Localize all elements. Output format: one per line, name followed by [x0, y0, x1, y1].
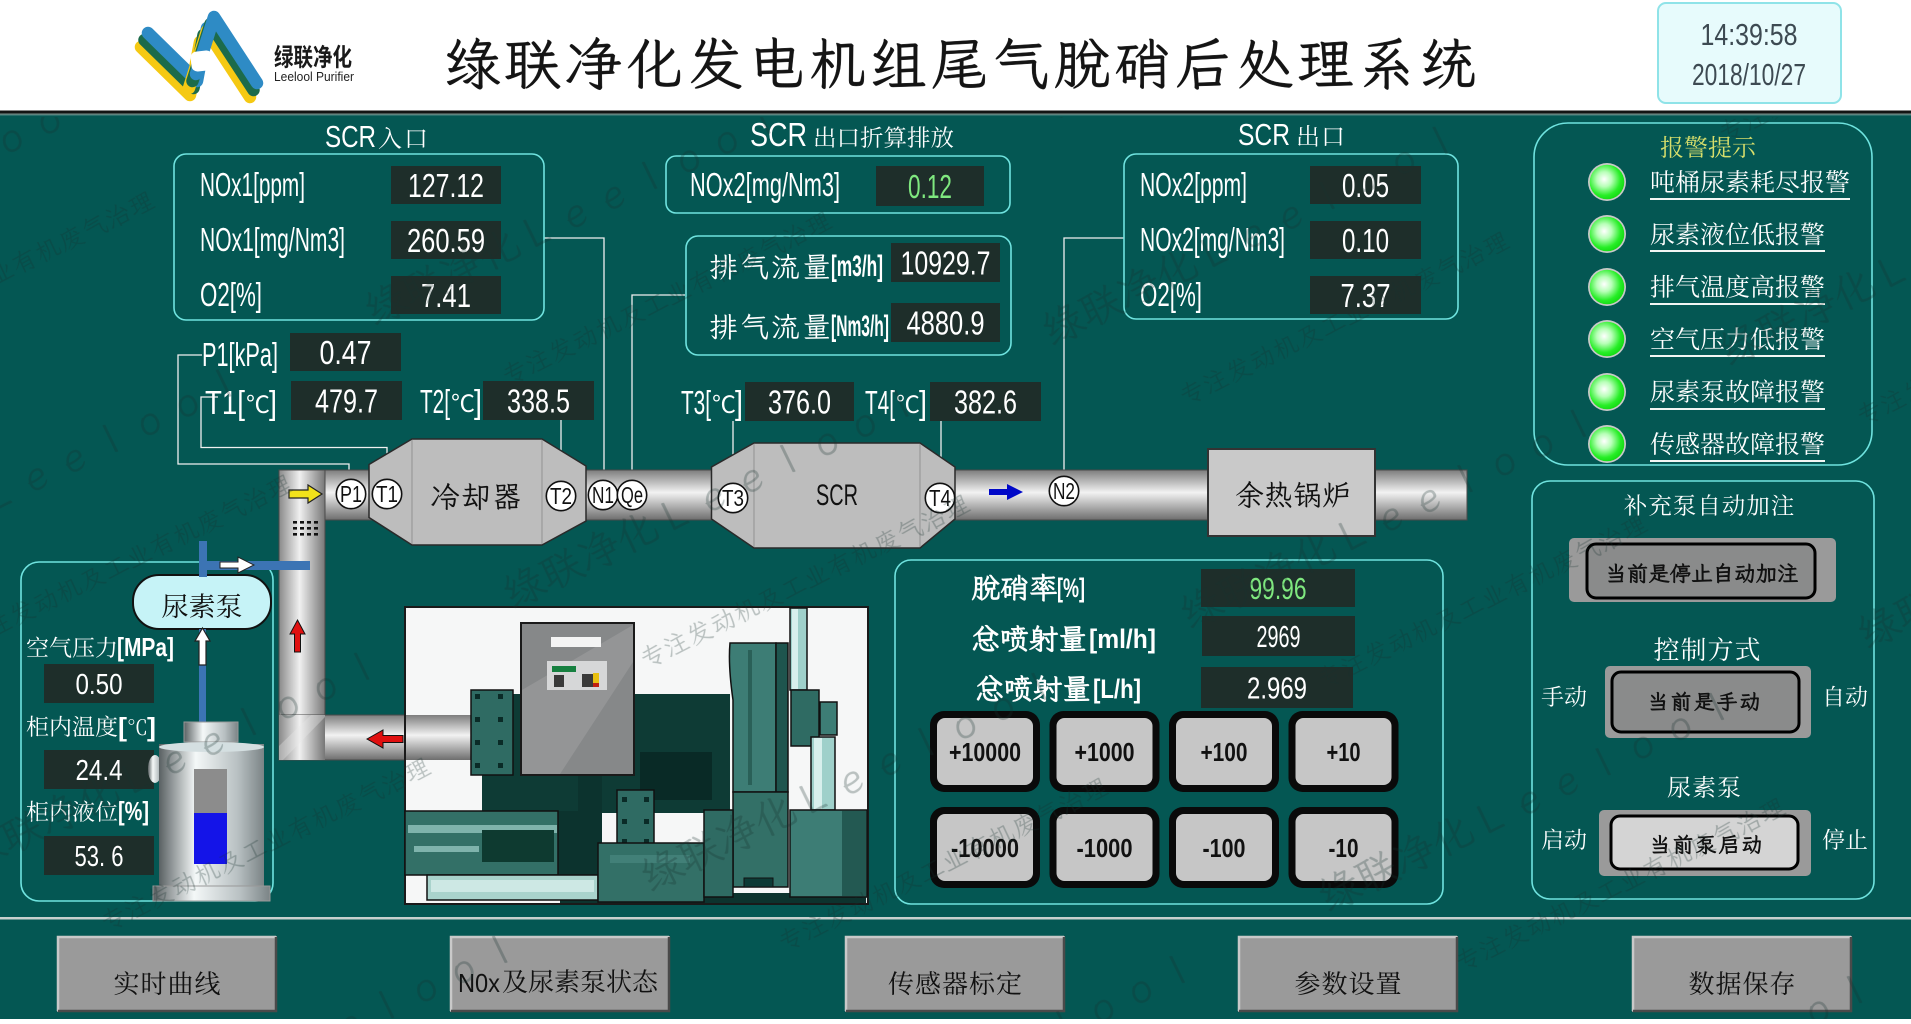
svg-text:14:39:58: 14:39:58 [1701, 17, 1798, 52]
svg-text:Leelool Purifier: Leelool Purifier [274, 69, 355, 84]
svg-text:2018/10/27: 2018/10/27 [1692, 57, 1806, 92]
